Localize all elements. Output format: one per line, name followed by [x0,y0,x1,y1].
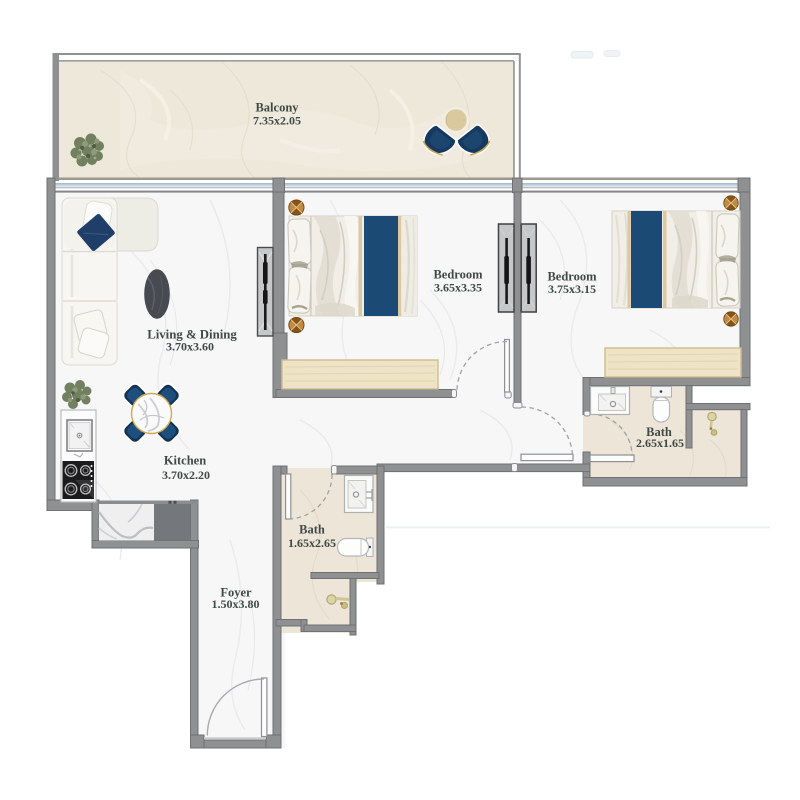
svg-text:Bedroom: Bedroom [433,268,483,282]
svg-text:Balcony: Balcony [255,101,299,115]
svg-text:3.70x2.20: 3.70x2.20 [162,468,210,482]
svg-text:3.70x3.60: 3.70x3.60 [166,340,214,354]
svg-text:3.75x3.15: 3.75x3.15 [548,282,596,296]
svg-text:3.65x3.35: 3.65x3.35 [434,281,482,295]
svg-text:2.65x1.65: 2.65x1.65 [636,436,684,450]
svg-text:Kitchen: Kitchen [164,454,206,468]
svg-text:Bath: Bath [299,523,325,537]
svg-text:1.65x2.65: 1.65x2.65 [288,536,336,550]
svg-text:1.50x3.80: 1.50x3.80 [212,597,260,611]
svg-text:7.35x2.05: 7.35x2.05 [253,114,301,128]
